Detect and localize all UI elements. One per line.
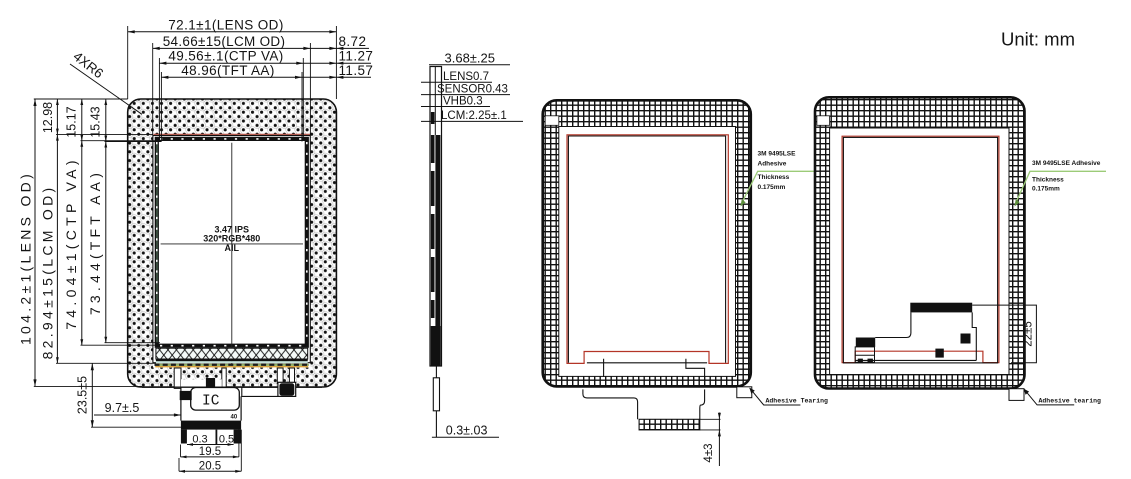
svg-text:Thickness: Thickness <box>758 174 790 181</box>
svg-text:49.56±.1(CTP VA): 49.56±.1(CTP VA) <box>168 49 283 64</box>
svg-text:15.43: 15.43 <box>89 106 103 137</box>
svg-text:Thickness: Thickness <box>1032 176 1064 183</box>
svg-text:19.5: 19.5 <box>199 446 221 458</box>
svg-text:Unit: mm: Unit: mm <box>1001 29 1075 50</box>
svg-text:72.1±1(LENS OD): 72.1±1(LENS OD) <box>168 17 283 32</box>
svg-text:SENSOR0.43: SENSOR0.43 <box>437 84 508 96</box>
svg-text:3M 9495LSE Adhesive: 3M 9495LSE Adhesive <box>1032 160 1101 167</box>
svg-text:15.17: 15.17 <box>65 106 79 137</box>
svg-text:12.98: 12.98 <box>41 102 55 133</box>
svg-text:Adhesive tearing: Adhesive tearing <box>1039 398 1102 405</box>
svg-text:8.72: 8.72 <box>339 34 367 49</box>
svg-text:0.175mm: 0.175mm <box>758 184 786 191</box>
svg-text:0.3: 0.3 <box>192 434 207 446</box>
svg-text:LENS0.7: LENS0.7 <box>443 71 489 83</box>
svg-text:40: 40 <box>231 415 238 421</box>
svg-text:3M 9495LSE: 3M 9495LSE <box>758 151 797 158</box>
svg-text:Adhesive: Adhesive <box>758 160 787 167</box>
svg-text:23.5±5: 23.5±5 <box>76 376 90 414</box>
svg-text:73.44(TFT AA): 73.44(TFT AA) <box>87 169 103 315</box>
svg-text:LCM:2.25±.1: LCM:2.25±.1 <box>441 110 507 122</box>
svg-text:4±3: 4±3 <box>703 443 715 462</box>
svg-text:48.96(TFT AA): 48.96(TFT AA) <box>181 63 274 78</box>
svg-text:9.7±.5: 9.7±.5 <box>105 401 140 415</box>
svg-text:20.5: 20.5 <box>199 460 221 472</box>
svg-text:0.3±.03: 0.3±.03 <box>446 424 488 438</box>
svg-text:82.94±15(LCM OD): 82.94±15(LCM OD) <box>39 185 55 360</box>
svg-text:74.04±1(CTP VA): 74.04±1(CTP VA) <box>63 156 79 330</box>
svg-text:0.175mm: 0.175mm <box>1032 185 1060 192</box>
svg-text:11.27: 11.27 <box>339 49 374 64</box>
svg-text:104.2±1(LENS OD): 104.2±1(LENS OD) <box>18 171 34 345</box>
svg-text:IC: IC <box>202 394 220 410</box>
svg-text:VHB0.3: VHB0.3 <box>443 95 483 107</box>
svg-text:11.57: 11.57 <box>339 63 374 78</box>
svg-text:0.5: 0.5 <box>219 434 234 446</box>
svg-text:Adhesive Tearing: Adhesive Tearing <box>766 398 829 405</box>
svg-text:AIL: AIL <box>225 243 240 253</box>
svg-text:22±5: 22±5 <box>1023 321 1035 347</box>
svg-text:54.66±15(LCM OD): 54.66±15(LCM OD) <box>163 34 286 49</box>
svg-text:3.68±.25: 3.68±.25 <box>445 50 496 65</box>
